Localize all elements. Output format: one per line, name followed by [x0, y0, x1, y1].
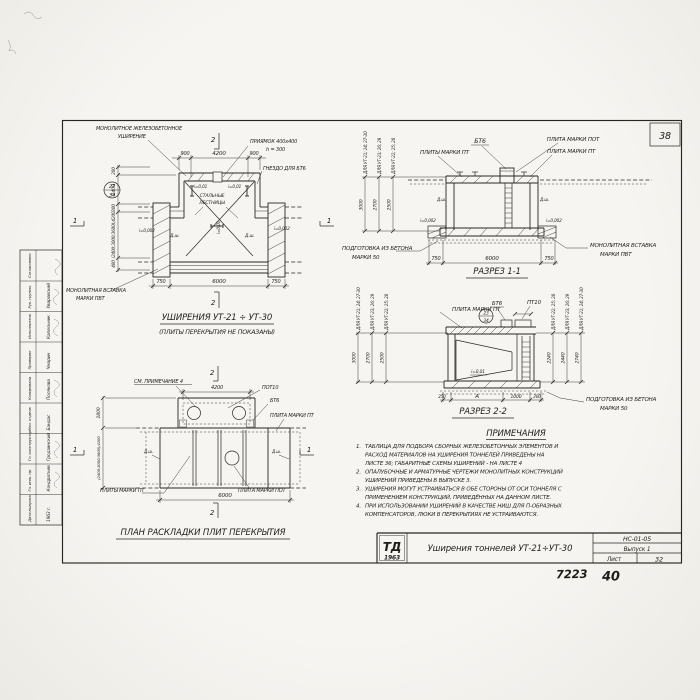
dim-label: 3000 — [359, 199, 365, 210]
fig-label-insert: МАРКИ ПВТ — [76, 296, 106, 302]
staff-role: Рук. группы — [27, 286, 32, 309]
fig-label-bt6: БТ6 — [474, 138, 486, 145]
fig-label-slope-roof: i=0,01 — [216, 220, 221, 234]
dim-label: 900 — [180, 151, 189, 157]
fig-label-stairs: СТАЛЬНЫЕ — [200, 193, 225, 199]
staff-role: Гл. конструктор — [27, 430, 32, 461]
section-mark-1: 1 — [73, 217, 77, 225]
detail-mark-sheet: 34 — [483, 318, 489, 324]
fig-label-see-note: СМ. ПРИМЕЧАНИЕ 4 — [134, 379, 183, 385]
fig-label-slope: i=0,002 — [546, 218, 562, 223]
fig-label-plates-pt: ПЛИТЫ МАРКИ ПТ — [420, 150, 470, 156]
detail-mark-number: 27 — [109, 184, 116, 190]
staff-role: Копировала — [27, 376, 32, 400]
dim-label: 2500 — [387, 199, 393, 210]
dim-group-label: ДЛЯ УТ-21; 24; 27-30 — [579, 287, 584, 331]
fig-label-joint: Д.ш. — [244, 233, 255, 239]
dim-label: А — [474, 394, 479, 400]
titleblock-title: Уширения тоннелей УТ-21÷УТ-30 — [428, 544, 573, 554]
section-mark-2: 2 — [211, 136, 216, 144]
figure-section-1-1: БТ6 ПЛИТА МАРКИ ПОТ ПЛИТЫ МАРКИ ПТ ПЛИТА… — [342, 131, 656, 278]
dim-label: 750 — [156, 279, 165, 285]
dim-label: 750 — [271, 279, 280, 285]
staff-role: Проверил — [27, 350, 32, 369]
signature-scribbles — [53, 259, 60, 488]
fig-label-joint: Д.ш. — [539, 197, 549, 202]
section-mark-1: 1 — [307, 446, 311, 454]
fig-label-slope-roof: i=0,01 — [194, 184, 208, 189]
note-line: ПРИМЕНЕНИЕМ КОНСТРУКЦИЙ, ПРИВЕДЁННЫХ НА … — [365, 494, 552, 501]
dim-label: 6000 — [485, 256, 499, 262]
notes-block: ПРИМЕЧАНИЯ 1. ТАБЛИЦА ДЛЯ ПОДБОРА СБОРНЫ… — [356, 429, 563, 518]
fig-label-plate-pt: ПЛИТА МАРКИ ПТ — [452, 307, 501, 313]
dim-label: 6000 — [218, 493, 232, 499]
staff-name: Кондратьев — [46, 465, 52, 492]
note-line: РАСХОД МАТЕРИАЛОВ НА УШИРЕНИЯ ТОННЕЛЕЙ П… — [365, 452, 545, 459]
section-mark-2: 2 — [210, 509, 215, 517]
note-line: УШИРЕНИЙ ПРИВЕДЕНЫ В ВЫПУСКЕ 3. — [365, 477, 471, 484]
fig-label-insert: МОНОЛИТНАЯ ВСТАВКА — [66, 288, 127, 294]
signature-strip: Согласовано Рук. группы Уваровский Испол… — [20, 250, 62, 525]
dim-label: (2400;3000;3600);4200 — [111, 211, 116, 258]
note-line: УШИРЕНИЯ МОГУТ УСТРАИВАТЬСЯ В ОБЕ СТОРОН… — [365, 487, 562, 493]
fig-label-pt10: ПТ10 — [527, 300, 542, 306]
fig-label-insert: МАРКИ ПВТ — [600, 252, 632, 258]
staff-name: Капельник — [46, 315, 52, 339]
sheet-page-number: 38 — [659, 131, 671, 142]
fig-label-joint: Д.ш. — [143, 449, 153, 454]
staff-name: Гродзинский — [46, 433, 52, 461]
dim-label: (2400;3000;3600);4200 — [96, 436, 101, 480]
fig-label-slope: i=0,01 — [471, 369, 485, 375]
figure-title: РАЗРЕЗ 1-1 — [473, 267, 520, 277]
staff-role: Нач. отдела — [27, 407, 32, 431]
handwritten-page: 40 — [601, 569, 620, 584]
dim-group-label: ДЛЯ УТ-21; 24; 27-30 — [363, 131, 368, 175]
staff-role: Гл. инж. пр. — [27, 469, 32, 492]
dim-label: 6000 — [212, 279, 226, 285]
fig-label-plate-pt: ПЛИТА МАРКИ ПТ — [270, 413, 315, 419]
fig-label-prep: МАРКИ 50 — [600, 406, 628, 412]
section-mark-2: 2 — [210, 369, 215, 377]
sheet-canvas: 38 — [0, 0, 700, 700]
notes-heading: ПРИМЕЧАНИЯ — [486, 429, 546, 439]
fig-label-slope: i=0,002 — [420, 218, 436, 223]
dim-label: 900 — [249, 151, 258, 157]
fig-label-joint: Д.ш. — [436, 197, 446, 202]
fig-label-prep: МАРКИ 50 — [352, 255, 380, 261]
fig-label-plate-pot: ПЛИТА МАРКИ ПОТ — [238, 488, 287, 494]
figure-subtitle: (ПЛИТЫ ПЕРЕКРЫТИЯ НЕ ПОКАЗАНЫ) — [159, 329, 275, 336]
doc-code: НС-01-05 — [623, 536, 651, 543]
dim-label: 1800 — [96, 407, 102, 418]
dim-label: 3000 — [352, 352, 358, 363]
fig-label-stairs: ЛЕСТНИЦЫ — [198, 200, 225, 206]
dim-label: 2240 — [547, 352, 553, 363]
dim-label: 2700 — [373, 199, 379, 210]
dim-label: 2740 — [575, 352, 581, 363]
dim-group-label: ДЛЯ УТ-22; 25; 28 — [384, 293, 389, 331]
staff-name: 1963 г. — [46, 507, 52, 522]
fig-label-slope: i=0,002 — [274, 226, 290, 231]
dim-label: 400 — [111, 260, 116, 268]
fig-label-prep: ПОДГОТОВКА ИЗ БЕТОНА — [586, 397, 657, 403]
dim-group-label: ДЛЯ УТ-23; 26; 29 — [565, 293, 570, 331]
note-number: 3. — [356, 487, 361, 493]
dim-label: 250 — [438, 394, 446, 399]
staff-role: Согласовано — [27, 253, 32, 278]
fig-label-bt6: БТ6 — [270, 398, 279, 404]
fig-label-insert: МОНОЛИТНАЯ ВСТАВКА — [590, 243, 656, 249]
figure-title: ПЛАН РАСКЛАДКИ ПЛИТ ПЕРЕКРЫТИЯ — [121, 528, 286, 538]
fig-label-pit: ПРИЯМОК 400х400 — [250, 139, 297, 145]
dim-group-label: ДЛЯ УТ-23; 26; 29 — [370, 293, 375, 331]
dim-label: 750 — [431, 256, 440, 262]
dim-label: 300 — [111, 204, 116, 212]
figure-title: РАЗРЕЗ 2-2 — [459, 407, 506, 417]
title-block: ТД 1963 Уширения тоннелей УТ-21÷УТ-30 НС… — [377, 533, 682, 564]
handwritten-numbers: 7223 40 — [556, 566, 620, 585]
fig-label-plate-pot: ПЛИТА МАРКИ ПОТ — [547, 137, 600, 143]
dim-label: 200 — [111, 167, 116, 175]
figure-slab-layout: Д.ш. Д.ш. 4200 2 2 1800 (2400;3000;3600)… — [70, 366, 315, 539]
figure-section-2-2: 23 34 ПЛИТА МАРКИ ПТ БТ6 ПТ10 i=0,01 — [352, 287, 657, 418]
issue-label: Выпуск 1 — [624, 547, 651, 553]
dim-group-label: ДЛЯ УТ-22; 25; 28 — [551, 293, 556, 331]
fig-label-slope-roof: i=0,01 — [228, 184, 242, 189]
section-mark-1: 1 — [327, 217, 331, 225]
drawing-sheet: { "sheet": { "page_number": "38", "doc_c… — [0, 0, 700, 700]
figure-plan-widening: 900 4200 900 2 2 750 6000 750 200 1400 3… — [66, 126, 334, 336]
section-mark-1: 1 — [73, 446, 77, 454]
note-line: ОПАЛУБОЧНЫЕ И АРМАТУРНЫЕ ЧЕРТЕЖИ МОНОЛИТ… — [365, 469, 563, 476]
fig-label-joint: Д.ш. — [271, 449, 281, 454]
staff-name: Чмарин — [46, 353, 52, 370]
note-line: КОМПЕНСАТОРОВ, ЛЮКИ В ПЕРЕКРЫТИЯХ НЕ УСТ… — [365, 512, 538, 518]
dim-label: 200 — [533, 394, 541, 399]
fig-label-plates-pt: ПЛИТЫ МАРКИ ПТ — [100, 488, 145, 494]
fig-label-pit: h = 300 — [266, 147, 285, 153]
sheet-label: Лист — [606, 557, 622, 563]
fig-label-slope: i=0,002 — [139, 228, 155, 233]
dim-label: 2440 — [561, 352, 567, 363]
note-line: ЛИСТЕ 36; ГАБАРИТНЫЕ СХЕМЫ УШИРЕНИЙ - НА… — [364, 460, 523, 467]
dim-group-label: ДЛЯ УТ-21; 24; 27-30 — [356, 287, 361, 331]
dim-label: 4200 — [212, 151, 226, 157]
corner-marks — [8, 12, 42, 54]
section-mark-2: 2 — [211, 299, 216, 307]
fig-label-widening: УШИРЕНИЕ — [118, 134, 147, 140]
fig-label-widening: МОНОЛИТНОЕ ЖЕЛЕЗОБЕТОННОЕ — [96, 126, 183, 132]
note-line: ТАБЛИЦА ДЛЯ ПОДБОРА СБОРНЫХ ЖЕЛЕЗОБЕТОНН… — [365, 444, 558, 450]
dim-group-label: ДЛЯ УТ-23; 26; 29 — [377, 137, 382, 175]
staff-name: Уваровский — [46, 283, 52, 309]
staff-name: Полякова — [46, 379, 52, 400]
fig-label-pot10: ПОТ10 — [262, 385, 278, 391]
dim-label: 2700 — [366, 352, 372, 363]
staff-role: Дата выпуска — [27, 495, 32, 523]
sheet-number: 32 — [655, 556, 663, 564]
fig-label-bt6: БТ6 — [492, 301, 503, 307]
figure-title: УШИРЕНИЯ УТ-21 ÷ УТ-30 — [162, 313, 272, 323]
fig-label-socket: ГНЕЗДО ДЛЯ БТ6 — [263, 166, 306, 172]
staff-role: Исполнитель — [27, 314, 32, 339]
note-number: 2. — [356, 470, 361, 476]
logo-td: ТД — [383, 540, 402, 554]
logo-year: 1963 — [384, 555, 400, 562]
note-number: 4. — [356, 504, 361, 510]
detail-mark-sheet: 34 — [109, 193, 115, 199]
dim-label: 1000 — [510, 394, 521, 400]
fig-label-joint: Д.ш. — [169, 233, 180, 239]
dim-group-label: ДЛЯ УТ-22; 25; 28 — [391, 137, 396, 175]
note-line: ПРИ ИСПОЛЬЗОВАНИИ УШИРЕНИЙ В КАЧЕСТВЕ НИ… — [365, 503, 562, 510]
dim-label: 2500 — [380, 352, 386, 363]
handwritten-code: 7223 — [556, 567, 588, 582]
fig-label-plate-pt: ПЛИТА МАРКИ ПТ — [547, 149, 596, 155]
dim-label: 4200 — [211, 385, 223, 391]
staff-name: Бандас — [46, 414, 52, 431]
dim-label: 750 — [544, 256, 553, 262]
note-number: 1. — [356, 444, 361, 450]
